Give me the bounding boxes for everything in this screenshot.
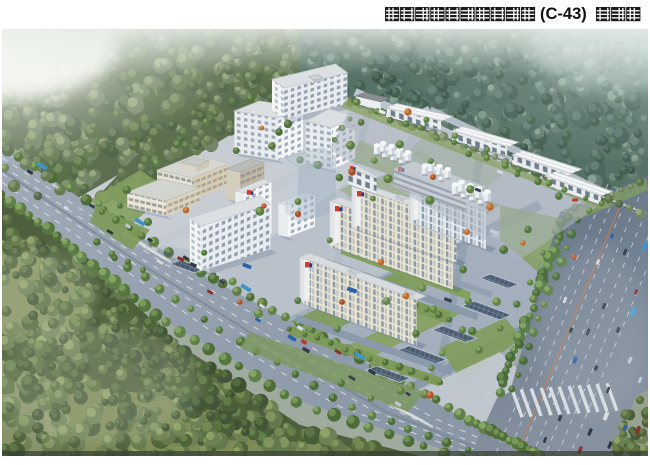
svg-text:(C-43): (C-43): [540, 5, 587, 23]
